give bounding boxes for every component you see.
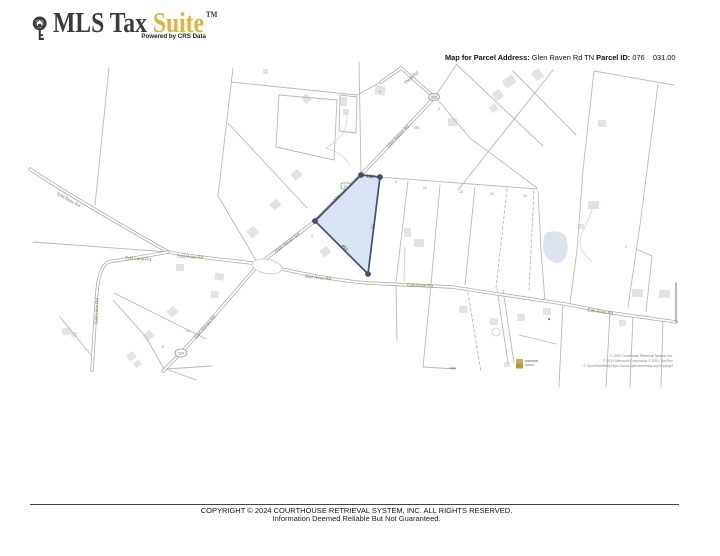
svg-text:Edd Ross Rd: Edd Ross Rd bbox=[305, 274, 332, 282]
svg-text:18: 18 bbox=[523, 194, 527, 198]
svg-text:Glen Raven Rd: Glen Raven Rd bbox=[386, 124, 411, 149]
svg-text:4: 4 bbox=[395, 180, 397, 184]
svg-text:394: 394 bbox=[414, 126, 420, 130]
svg-text:Glen Raven Rd: Glen Raven Rd bbox=[274, 231, 301, 254]
svg-text:© OpenStreetMap https://www.op: © OpenStreetMap https://www.openstreetma… bbox=[583, 364, 673, 368]
svg-text:18: 18 bbox=[490, 192, 494, 196]
svg-text:9: 9 bbox=[379, 90, 381, 94]
svg-text:47: 47 bbox=[161, 345, 165, 349]
svg-text:16: 16 bbox=[186, 329, 190, 333]
svg-text:18: 18 bbox=[423, 186, 427, 190]
svg-text:8: 8 bbox=[438, 107, 440, 111]
svg-text:18: 18 bbox=[459, 190, 463, 194]
svg-text:4: 4 bbox=[311, 234, 313, 238]
svg-text:152: 152 bbox=[366, 174, 375, 180]
svg-text:© 2024 Microsoft Corporation ©: © 2024 Microsoft Corporation © 2024 TomT… bbox=[603, 359, 673, 363]
svg-text:Glen Raven Rd: Glen Raven Rd bbox=[193, 314, 217, 340]
svg-text:Edd Ross Rd: Edd Ross Rd bbox=[407, 283, 434, 289]
svg-text:4: 4 bbox=[625, 245, 627, 249]
svg-text:73': 73' bbox=[370, 224, 376, 230]
svg-text:Edd Ross Rd: Edd Ross Rd bbox=[177, 253, 204, 259]
svg-text:Edd Ross Rd: Edd Ross Rd bbox=[587, 307, 614, 316]
svg-text:Edd Lane Rd: Edd Lane Rd bbox=[125, 255, 151, 262]
svg-text:294: 294 bbox=[178, 352, 184, 356]
svg-text:Edd Lane Rd: Edd Lane Rd bbox=[94, 297, 100, 323]
svg-text:229: 229 bbox=[431, 96, 437, 100]
svg-text:© 2024 Courthouse Retrieval Sy: © 2024 Courthouse Retrieval System, Inc. bbox=[610, 354, 673, 358]
